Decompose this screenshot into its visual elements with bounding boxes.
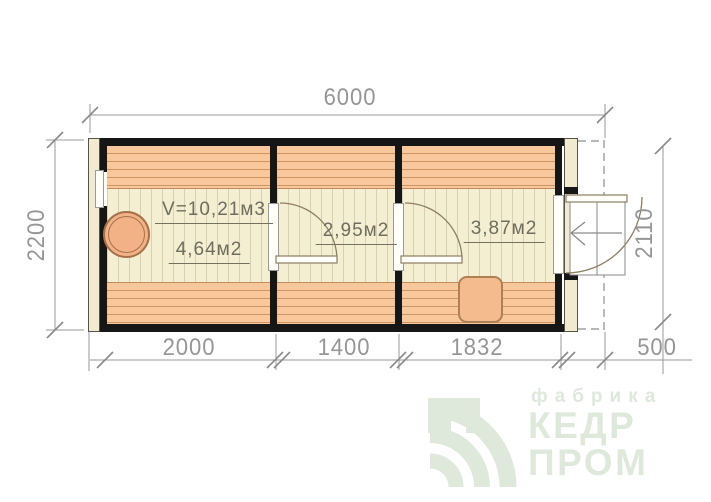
steam-room-area-label: 4,64м2 — [169, 239, 250, 264]
dim-bottom-segment3: 1832 — [451, 334, 504, 362]
dim-left-height: 2200 — [23, 209, 51, 262]
dim-bottom-segment1: 2000 — [163, 334, 216, 362]
dim-bottom-segment2: 1400 — [318, 334, 371, 362]
dim-right-height: 2110 — [631, 207, 659, 258]
dim-bottom-segment4: 500 — [637, 334, 677, 362]
steam-room-volume-label: V=10,21м3 — [155, 199, 273, 224]
dim-total-width: 6000 — [324, 84, 377, 112]
washing-room-area-label: 2,95м2 — [316, 220, 397, 245]
dimension-linework — [0, 0, 711, 502]
floor-plan-drawing: фабрика КЕДР ПРОМ — [0, 0, 711, 502]
rest-room-area-label: 3,87м2 — [464, 218, 545, 243]
